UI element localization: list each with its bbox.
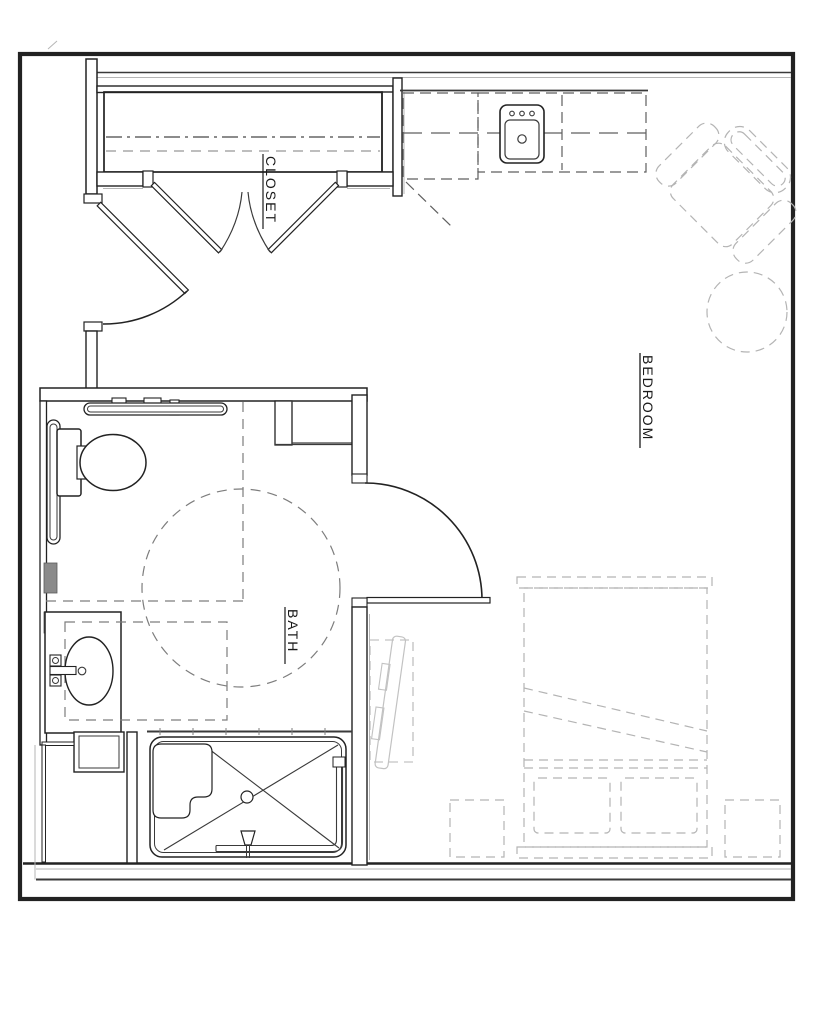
vanity-sink	[45, 612, 227, 733]
floor-plan-drawing: CLOSET	[0, 0, 819, 1024]
kitchen-closet-wall	[393, 78, 402, 196]
entry-door	[84, 194, 188, 390]
faucet-spout	[50, 667, 76, 675]
entry-door-swing-arc	[103, 291, 187, 324]
bath-east-wall-upper	[352, 395, 367, 475]
round-side-table	[707, 272, 787, 352]
toilet	[57, 429, 146, 496]
kitchenette	[400, 91, 648, 228]
refrigerator	[403, 93, 478, 179]
wall-blocking	[44, 563, 57, 593]
tv-panel	[375, 636, 406, 770]
turning-circle	[142, 489, 340, 687]
headboard	[517, 847, 712, 858]
bath-door-swing-arc	[365, 483, 482, 600]
base-cabinet	[74, 732, 124, 772]
bedroom: BEDROOM	[368, 103, 816, 858]
roll-in-shower	[147, 728, 352, 858]
nightstand-left	[450, 800, 504, 857]
footboard	[517, 577, 712, 588]
bath-east-wall-lower	[352, 607, 367, 865]
pillow	[621, 778, 697, 833]
shower-drain	[241, 791, 253, 803]
bedroom-label: BEDROOM	[640, 355, 656, 441]
bed	[517, 577, 712, 858]
closet-bifold-doors	[151, 182, 338, 253]
shower-valve	[241, 831, 255, 858]
shower-seat	[153, 744, 212, 818]
closet-room: CLOSET	[86, 59, 404, 253]
recessed-niche	[292, 401, 352, 443]
nightstand-right	[725, 800, 780, 857]
bathroom: BATH	[40, 388, 490, 865]
grab-bar-north	[84, 403, 227, 415]
bath-label: BATH	[285, 609, 301, 653]
bath-north-wall	[40, 388, 367, 401]
closet-label: CLOSET	[263, 156, 279, 224]
bath-door	[352, 483, 490, 607]
pillow	[534, 778, 610, 833]
floor-plan-page: CLOSET	[0, 0, 819, 1024]
closet-interior	[104, 92, 382, 172]
tv-dresser	[368, 635, 413, 769]
kitchen-sink	[500, 105, 544, 163]
closet-left-wall	[86, 59, 97, 194]
